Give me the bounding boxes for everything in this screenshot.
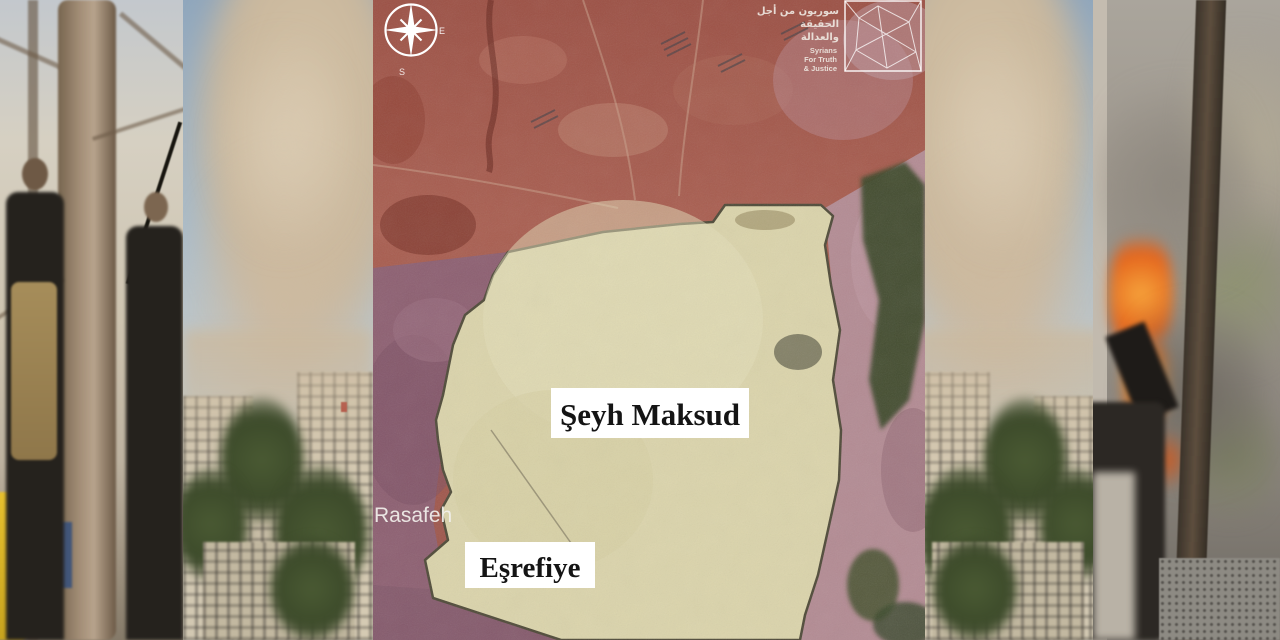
tree [934,538,1016,640]
fighter-silhouette [126,226,183,640]
fighter-head [22,158,48,190]
svg-text:For Truth: For Truth [804,55,837,64]
satellite-map: E S سوريون من أجل الحقيقة [373,0,925,640]
photo-dust-cloud-right [925,0,1093,640]
photo-fighters [0,0,183,640]
mirrored-photo-wrapper [925,0,1093,640]
fighter-head [144,192,168,222]
label-rasafeh: Rasafeh [374,504,452,527]
collage-banner: E S سوريون من أجل الحقيقة [0,0,1280,640]
label-sheikh-maqsood: Şeyh Maksud [551,388,749,438]
map-graphic: E S سوريون من أجل الحقيقة [373,0,925,640]
tree [271,538,353,640]
burned-car-body [1093,472,1135,640]
branch [119,12,183,74]
label-ashrafieh: Eşrefiye [465,542,595,588]
dust-plume [928,30,1078,260]
ground-debris [1159,558,1280,640]
tactical-vest [11,282,57,460]
photo-burning-vehicle [1093,0,1280,640]
map-texture-grain [373,0,925,640]
svg-text:& Justice: & Justice [804,64,837,73]
svg-text:Eşrefiye: Eşrefiye [480,552,581,584]
svg-text:والعدالة: والعدالة [801,32,839,43]
compass-south-label: S [399,67,405,77]
compass-east-label: E [439,26,445,36]
svg-text:Syrians: Syrians [810,46,837,55]
svg-text:الحقيقة: الحقيقة [800,19,839,30]
dust-plume [209,30,359,260]
svg-text:سوريون من أجل: سوريون من أجل [757,4,839,17]
svg-text:Şeyh Maksud: Şeyh Maksud [560,397,740,432]
photo-dust-cloud-left [183,0,373,640]
